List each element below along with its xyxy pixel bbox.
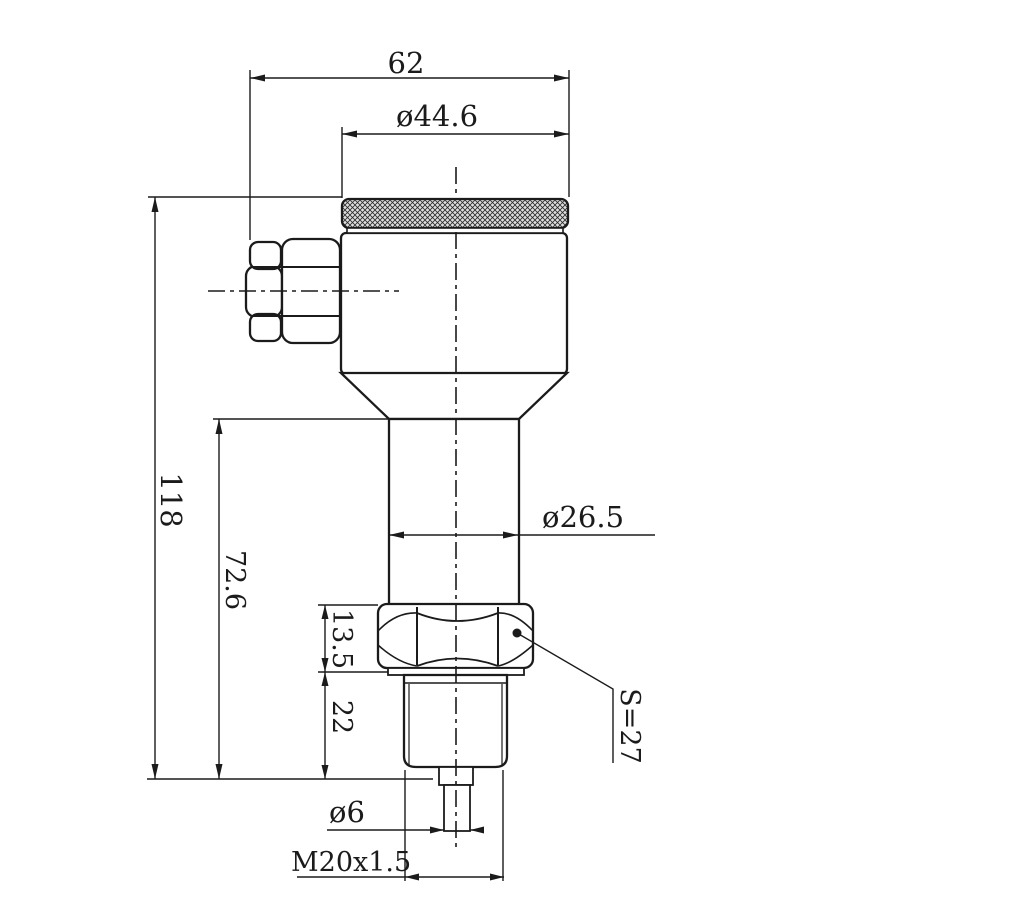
housing-body bbox=[341, 233, 567, 374]
label-overall-height: 118 bbox=[154, 472, 188, 527]
knurled-cap bbox=[342, 199, 568, 233]
label-probe-diameter: ø6 bbox=[329, 795, 365, 829]
label-lower-height: 72.6 bbox=[219, 550, 250, 610]
label-hex-height: 13.5 bbox=[326, 609, 357, 669]
label-overall-width: 62 bbox=[388, 46, 425, 80]
label-cap-diameter: ø44.6 bbox=[396, 99, 478, 133]
pressure-sensor-dimension-drawing: 62 ø44.6 118 72.6 ø26.5 13.5 22 S=27 ø6 … bbox=[0, 0, 1028, 908]
part-outline bbox=[246, 199, 568, 831]
label-body-diameter: ø26.5 bbox=[542, 500, 624, 534]
label-thread-length: 22 bbox=[326, 700, 357, 734]
technical-drawing-sheet: 62 ø44.6 118 72.6 ø26.5 13.5 22 S=27 ø6 … bbox=[0, 0, 1028, 908]
label-hex-across-flats: S=27 bbox=[614, 688, 645, 763]
label-thread-spec: M20x1.5 bbox=[291, 847, 411, 878]
dim-cap-diameter bbox=[342, 127, 569, 198]
taper-transition bbox=[341, 373, 567, 419]
neck-cylinder bbox=[389, 419, 519, 605]
